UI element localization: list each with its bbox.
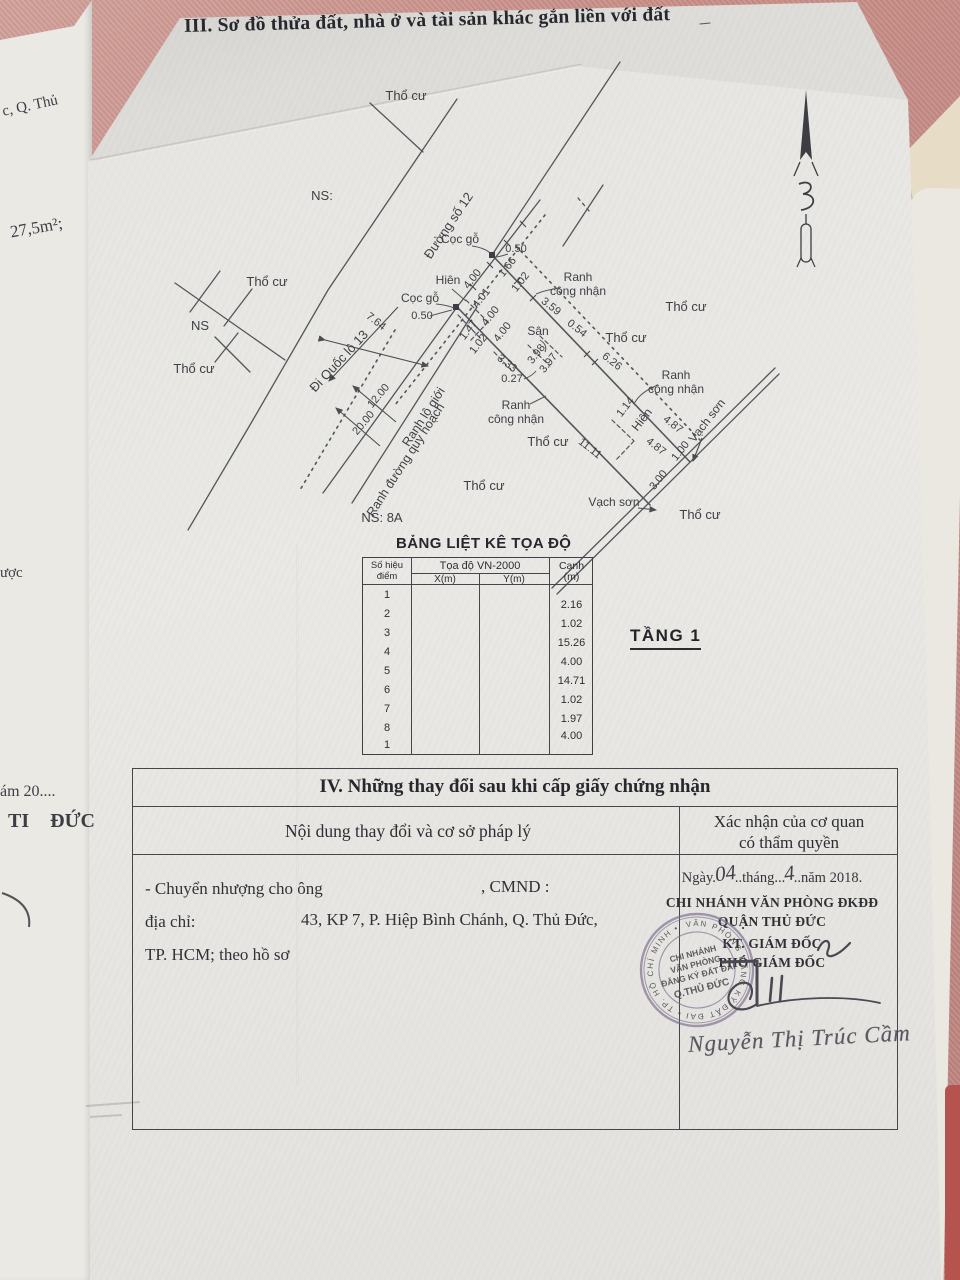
- ranh-cong-nhan-label: Ranh: [564, 270, 593, 284]
- ranh-cong-nhan-label: Ranh: [502, 398, 531, 412]
- col-header-point: điểm: [363, 571, 411, 582]
- dim-label: 3.33: [495, 352, 519, 375]
- cmnd-note: , CMND :: [481, 877, 549, 897]
- address-label: địa chỉ:: [145, 912, 196, 932]
- san-label: Sân: [527, 324, 548, 338]
- ranh-cong-nhan-label: công nhận: [648, 382, 704, 396]
- city-note: TP. HCM; theo hồ sơ: [145, 945, 290, 965]
- point-number: 1: [363, 739, 411, 751]
- official-stamp: VĂN PHÒNG ĐĂNG KÝ ĐẤT ĐAI • TP. HỒ CHÍ M…: [630, 900, 770, 1045]
- dim-label: 0.50: [411, 310, 432, 322]
- tho-cu-label: Thổ cư: [463, 478, 505, 493]
- handwritten-day: 04: [713, 860, 737, 887]
- table-gridline: [133, 806, 897, 807]
- road-12-label: Đường số 12: [421, 190, 476, 262]
- coc-go-label: Cọc gỗ: [401, 290, 439, 305]
- tho-cu-label: Thổ cư: [173, 361, 215, 376]
- section4-col2-header: Xác nhận của cơ quan có thẩm quyền: [683, 811, 895, 853]
- coord-table-title: BẢNG LIỆT KÊ TỌA ĐỘ: [396, 535, 571, 552]
- point-number: 2: [363, 608, 411, 620]
- ranh-cong-nhan-label: công nhận: [550, 284, 606, 298]
- edge-length: 15.26: [549, 637, 594, 649]
- point-number: 5: [363, 665, 411, 677]
- edge-length: 2.16: [549, 599, 594, 611]
- edge-length: 1.02: [549, 694, 594, 706]
- tho-cu-label: Thổ cư: [665, 299, 707, 314]
- point-number: 6: [363, 684, 411, 696]
- dim-label: 7.64: [364, 310, 388, 333]
- table-gridline: [133, 854, 897, 855]
- dim-label: 3.59: [539, 295, 563, 318]
- edge-length: 1.97: [549, 713, 594, 725]
- dim-label: 4.00: [491, 320, 514, 344]
- dim-label: 4.87: [661, 413, 685, 436]
- dim-label: 3.00: [647, 468, 670, 492]
- dim-label: 4.87: [644, 435, 668, 458]
- tho-cu-label: Thổ cư: [246, 274, 288, 289]
- col-header-x: X(m): [411, 574, 479, 585]
- dim-label: 4.00: [461, 267, 484, 291]
- table-gridline: [411, 558, 412, 754]
- hien-label: Hiên: [629, 406, 655, 434]
- transfer-note: - Chuyển nhượng cho ông: [145, 879, 323, 899]
- table-gridline: [479, 573, 480, 754]
- col-header-point: Số hiệu: [363, 560, 411, 571]
- ranh-cong-nhan-label: Ranh: [662, 368, 691, 382]
- ranh-cong-nhan-label: công nhận: [488, 412, 544, 426]
- ns-label: NS:: [311, 188, 333, 203]
- coc-go-label: Cọc gỗ: [441, 231, 479, 246]
- col2-header-line1: Xác nhận của cơ quan: [683, 811, 895, 832]
- tho-cu-label: Thổ cư: [605, 330, 647, 345]
- edge-length: 1.02: [549, 618, 594, 630]
- ns-label: NS: [191, 318, 209, 333]
- date-part: ..năm 2018.: [794, 870, 862, 886]
- dim-label: 1.14: [614, 395, 637, 419]
- dim-label: 1.02: [509, 270, 532, 294]
- section4-table: IV. Những thay đổi sau khi cấp giấy chứn…: [132, 768, 898, 1130]
- dim-label: 4.00: [479, 304, 502, 328]
- tho-cu-label: Thổ cư: [385, 88, 427, 103]
- section4-col1-header: Nội dung thay đổi và cơ sở pháp lý: [193, 821, 623, 842]
- dim-label: 12.00: [365, 382, 392, 411]
- dim-label: 1.66: [496, 255, 519, 279]
- col2-header-line2: có thẩm quyền: [683, 832, 895, 853]
- floor-label: TẦNG 1: [630, 626, 701, 650]
- north-arrow-icon: [794, 90, 818, 267]
- vach-son-label: Vạch sơn: [588, 495, 639, 509]
- edge-length: 14.71: [549, 675, 594, 687]
- date-part: Ngày.: [682, 870, 716, 886]
- point-number: 7: [363, 703, 411, 715]
- edge-length: 4.00: [549, 656, 594, 668]
- address-value: 43, KP 7, P. Hiệp Bình Chánh, Q. Thủ Đức…: [301, 910, 598, 930]
- point-number: 1: [363, 589, 411, 601]
- point-number: 8: [363, 722, 411, 734]
- dim-label: 0.50: [505, 243, 526, 255]
- section4-title: IV. Những thay đổi sau khi cấp giấy chứn…: [133, 776, 897, 798]
- date-part: ..tháng...: [735, 870, 785, 886]
- col-header-edge: (m): [549, 571, 594, 583]
- dim-label: 6.26: [600, 350, 624, 373]
- edge-length: 4.00: [549, 730, 594, 742]
- dim-label: 11.11: [576, 436, 604, 461]
- date-line: Ngày.04..tháng...4..năm 2018.: [649, 863, 895, 888]
- col-header-coord: Tọa độ VN-2000: [411, 560, 549, 572]
- point-number: 3: [363, 627, 411, 639]
- coord-table: Số hiệu điểm Tọa độ VN-2000 X(m) Y(m) Cạ…: [362, 557, 593, 755]
- handwritten-month: 4: [783, 860, 796, 886]
- dim-label: 0.27: [501, 373, 522, 385]
- hien-label: Hiên: [436, 273, 461, 287]
- dim-label: 0.54: [565, 317, 589, 340]
- col-header-y: Y(m): [479, 574, 549, 585]
- tho-cu-label: Thổ cư: [527, 434, 569, 449]
- point-number: 4: [363, 646, 411, 658]
- scanned-land-certificate-page: c, Q. Thủ 27,5m²; ược ám 20.... TI ĐỨC I…: [0, 0, 960, 1280]
- road-ql13-label: Đi Quốc lộ 13: [306, 327, 371, 395]
- tho-cu-label: Thổ cư: [679, 507, 721, 522]
